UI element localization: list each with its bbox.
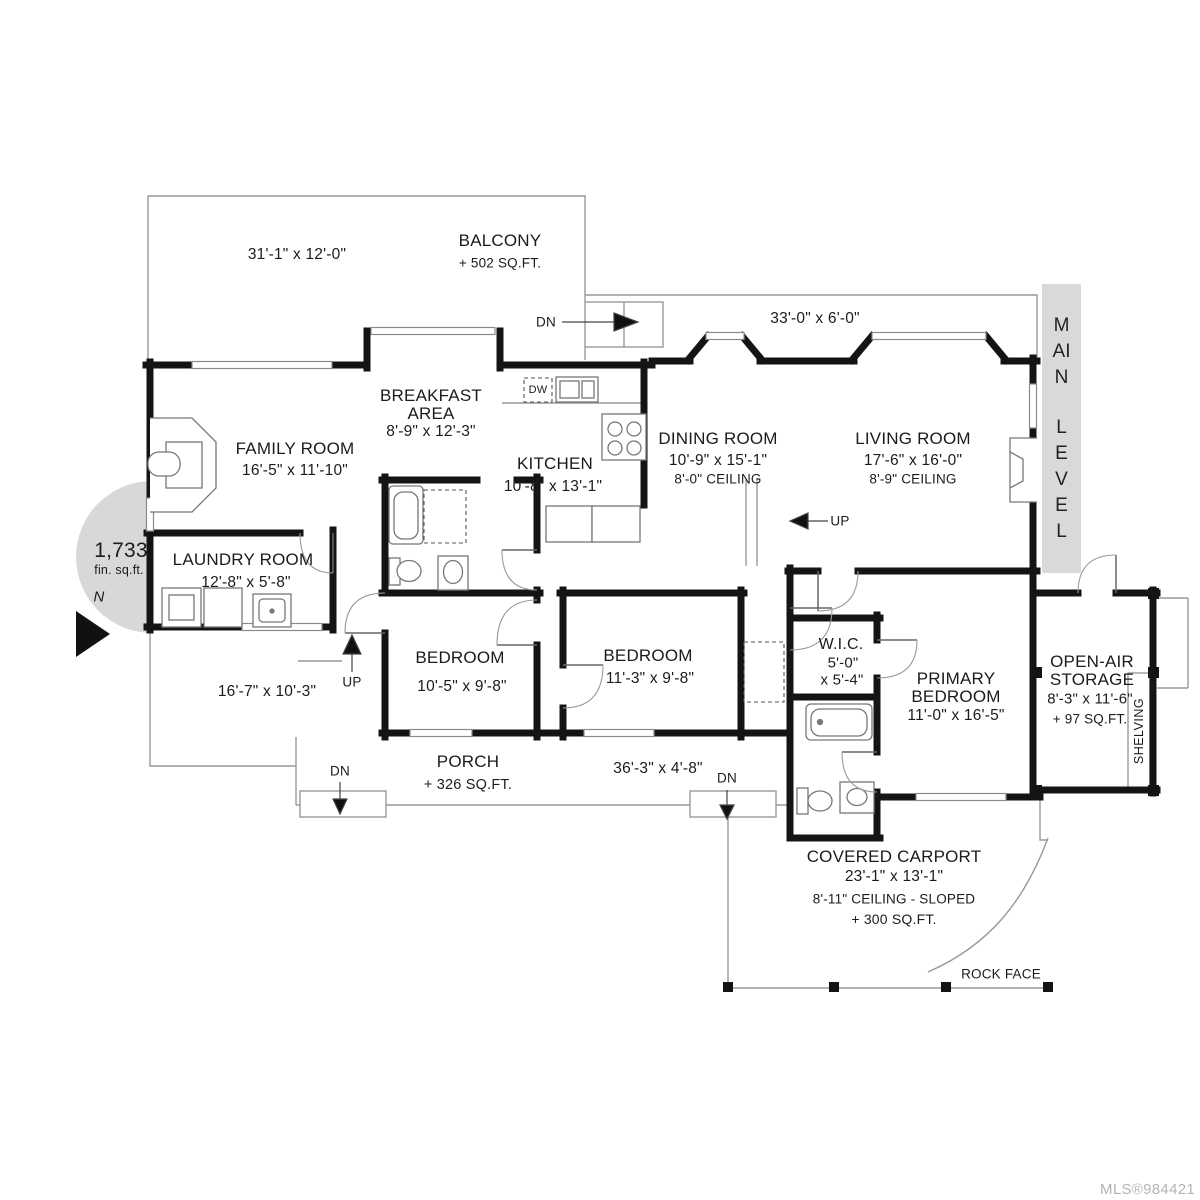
laundry-room-label: LAUNDRY ROOM bbox=[173, 550, 314, 570]
up-mid-label: UP bbox=[830, 514, 849, 529]
up-mid-arrow bbox=[790, 513, 808, 529]
family-room-label: FAMILY ROOM bbox=[236, 439, 355, 459]
living-room-dims: 17'-6" x 16'-0" bbox=[864, 452, 962, 470]
primary-toilet bbox=[797, 788, 808, 814]
stair-rails bbox=[746, 478, 757, 566]
primary-bedroom-dims: 11'-0" x 16'-5" bbox=[907, 707, 1004, 725]
primary-bedroom-label: PRIMARY BEDROOM bbox=[891, 670, 1021, 706]
open-air-storage-label: OPEN-AIR STORAGE bbox=[1026, 653, 1158, 689]
dryer bbox=[204, 588, 242, 627]
floorplan-page: MAIN LEVEL 31'-1" x 12'-0" BALCONY + 502… bbox=[0, 0, 1200, 1200]
dn-top-arrow bbox=[614, 313, 638, 331]
level-band: MAIN LEVEL bbox=[1042, 284, 1081, 573]
up-porch-arrow bbox=[343, 635, 361, 654]
level-band-word: MAIN bbox=[1052, 313, 1072, 391]
kitchen-dims: 10'-8" x 13'-1" bbox=[504, 478, 602, 496]
balcony-dims: 31'-1" x 12'-0" bbox=[248, 246, 346, 264]
upper-deck-dims: 33'-0" x 6'-0" bbox=[770, 310, 860, 328]
breakfast-area-label: BREAKFAST AREA bbox=[375, 387, 487, 423]
bedroom-1-dims: 10'-5" x 9'-8" bbox=[417, 678, 507, 696]
level-band-word: LEVEL bbox=[1052, 415, 1072, 545]
balcony-area: + 502 SQ.FT. bbox=[459, 256, 541, 271]
rock-face-label: ROCK FACE bbox=[961, 967, 1041, 982]
dining-room-dims: 10'-9" x 15'-1" bbox=[669, 452, 767, 470]
carport-dims: 23'-1" x 13'-1" bbox=[845, 868, 943, 886]
north-arrow bbox=[76, 611, 110, 657]
porch-label: PORCH bbox=[437, 752, 499, 772]
wic-dims-2: x 5'-4" bbox=[821, 672, 864, 689]
wic-dims-1: 5'-0" bbox=[828, 655, 859, 672]
carport-label: COVERED CARPORT bbox=[807, 847, 982, 867]
kitchen-island bbox=[546, 506, 592, 542]
total-area-value: 1,733 bbox=[94, 539, 148, 563]
dn-porch-right-label: DN bbox=[717, 771, 737, 786]
laundry-room-dims: 12'-8" x 5'-8" bbox=[201, 574, 291, 592]
total-area-unit: fin. sq.ft. bbox=[94, 563, 143, 577]
mls-number: MLS®984421 bbox=[1100, 1181, 1195, 1198]
breakfast-area-dims: 8'-9" x 12'-3" bbox=[386, 423, 476, 441]
living-room-ceiling: 8'-9" CEILING bbox=[869, 472, 956, 487]
up-porch-label: UP bbox=[342, 675, 361, 690]
wic-label: W.I.C. bbox=[819, 636, 864, 654]
balcony-label: BALCONY bbox=[459, 231, 542, 251]
porch-area: + 326 SQ.FT. bbox=[424, 777, 512, 793]
bedroom-1-label: BEDROOM bbox=[415, 648, 504, 668]
porch-step-right bbox=[690, 791, 776, 817]
kitchen-label: KITCHEN bbox=[517, 454, 593, 474]
living-room-label: LIVING ROOM bbox=[855, 429, 971, 449]
open-air-storage-area: + 97 SQ.FT. bbox=[1053, 712, 1128, 727]
dining-room-label: DINING ROOM bbox=[658, 429, 777, 449]
side-deck-dims: 16'-7" x 10'-3" bbox=[218, 683, 316, 701]
dn-top-label: DN bbox=[536, 315, 556, 330]
carport-area: + 300 SQ.FT. bbox=[851, 911, 936, 927]
bedroom-2-dims: 11'-3" x 9'-8" bbox=[606, 670, 694, 688]
carport-ceiling: 8'-11" CEILING - SLOPED bbox=[813, 892, 976, 907]
open-air-storage-dims: 8'-3" x 11'-6" bbox=[1047, 691, 1133, 708]
porch-dims: 36'-3" x 4'-8" bbox=[613, 760, 703, 778]
dining-room-ceiling: 8'-0" CEILING bbox=[674, 472, 761, 487]
bedroom-2-label: BEDROOM bbox=[603, 646, 692, 666]
dn-porch-left-label: DN bbox=[330, 764, 350, 779]
shelving-label: SHELVING bbox=[1132, 698, 1146, 764]
floorplan-geometry bbox=[0, 0, 1200, 1200]
dishwasher-label: DW bbox=[529, 384, 548, 396]
family-room-dims: 16'-5" x 11'-10" bbox=[242, 462, 348, 480]
north-label: N bbox=[93, 589, 104, 606]
